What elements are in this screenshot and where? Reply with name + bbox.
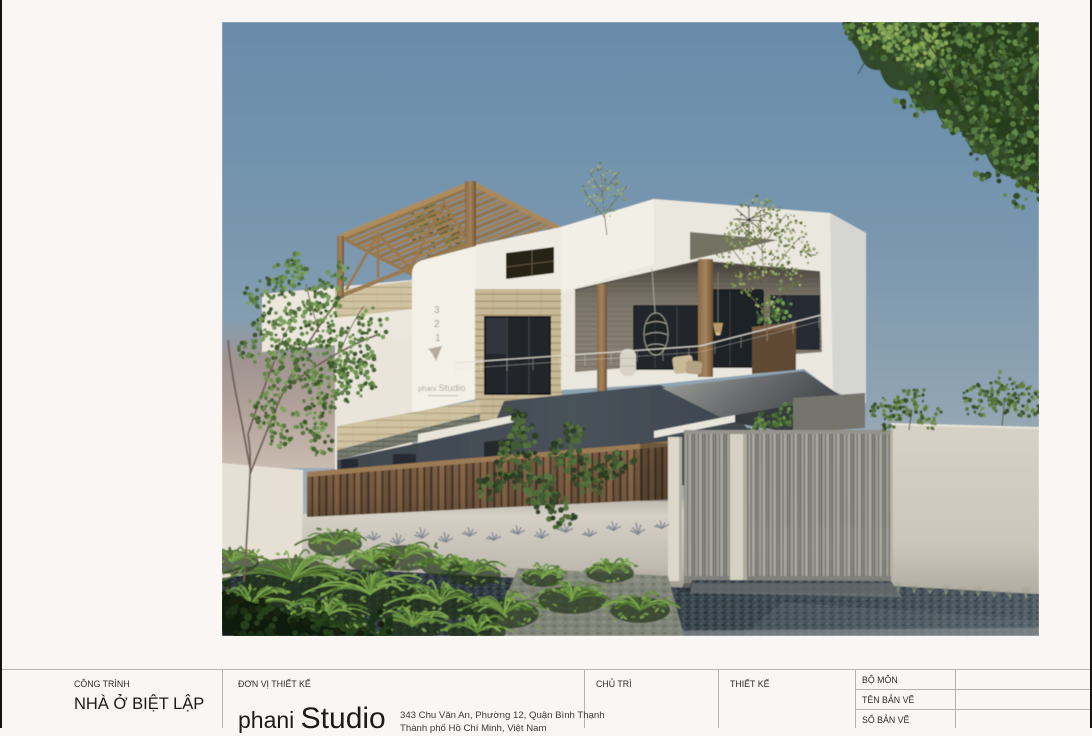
svg-text:2: 2 <box>434 319 440 330</box>
svg-text:1: 1 <box>435 333 441 344</box>
svg-text:3: 3 <box>434 305 440 316</box>
svg-text:phani Studio: phani Studio <box>418 383 465 394</box>
